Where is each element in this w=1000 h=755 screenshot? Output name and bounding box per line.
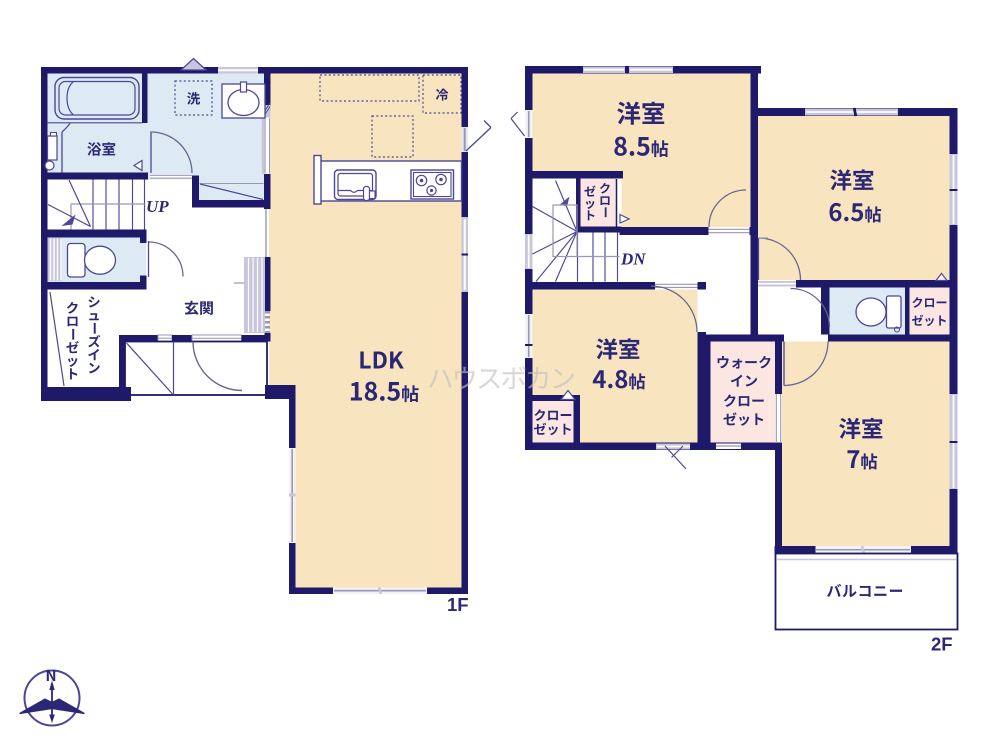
svg-text:1F: 1F xyxy=(447,594,469,615)
svg-text:2F: 2F xyxy=(931,634,953,655)
svg-text:UP: UP xyxy=(146,197,169,216)
svg-text:DN: DN xyxy=(620,250,646,269)
